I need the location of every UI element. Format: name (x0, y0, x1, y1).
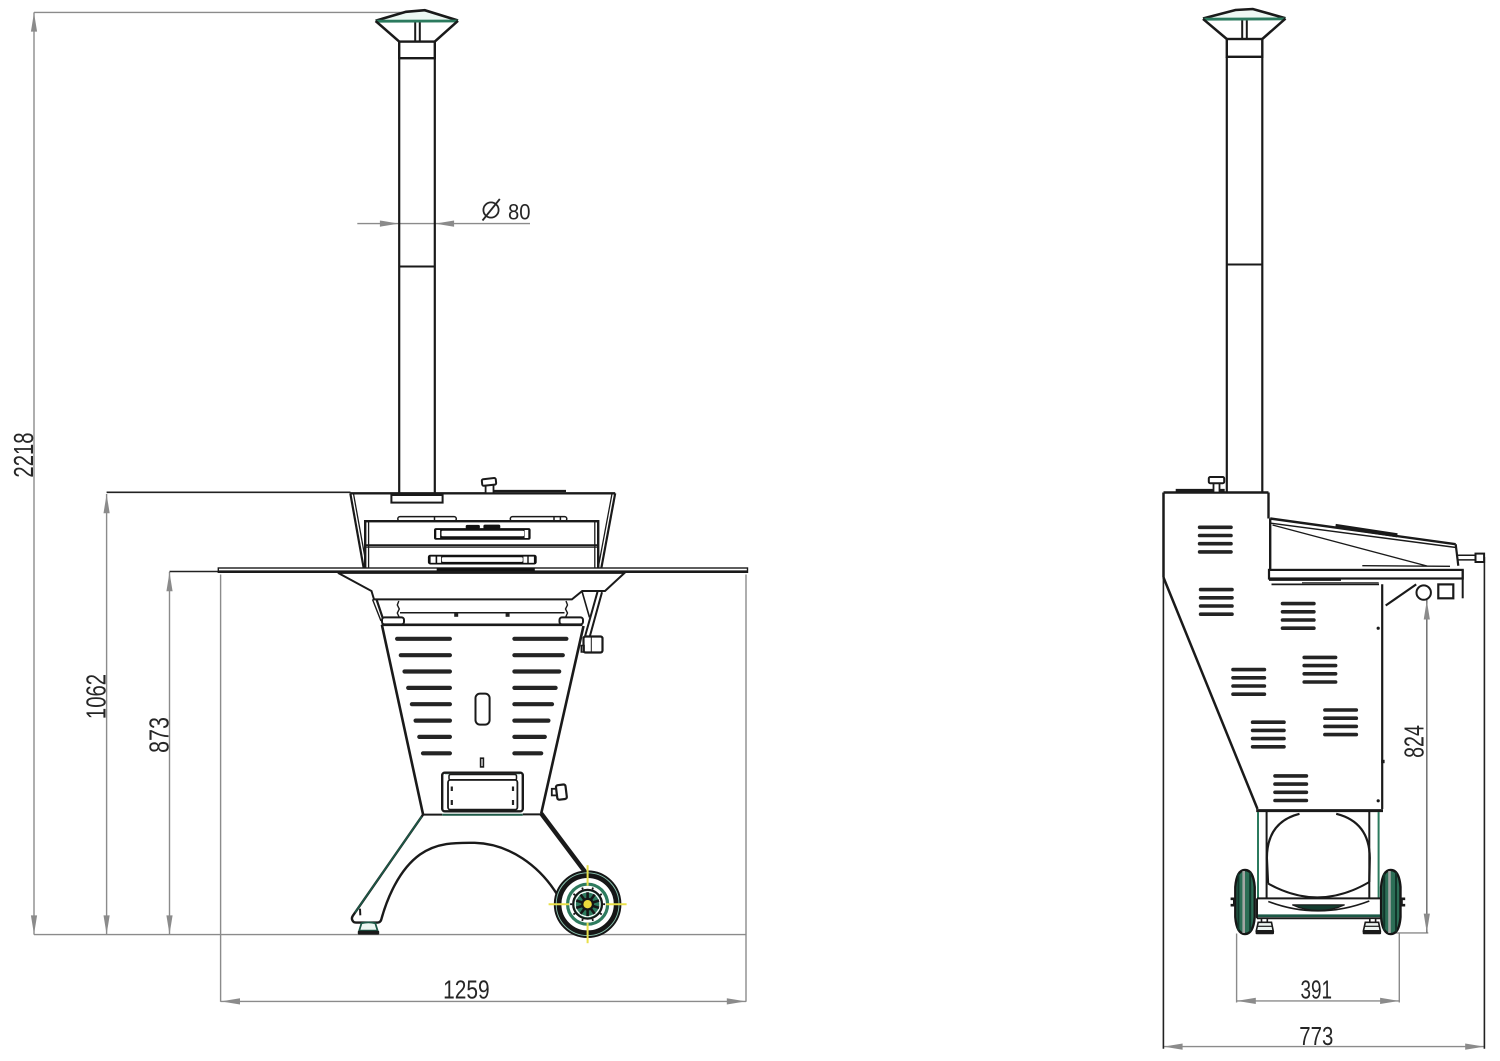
svg-text:1259: 1259 (443, 974, 490, 1004)
svg-text:391: 391 (1301, 975, 1333, 1005)
svg-text:873: 873 (144, 717, 175, 753)
svg-text:1062: 1062 (81, 674, 112, 719)
svg-text:80: 80 (508, 199, 531, 224)
svg-text:773: 773 (1299, 1021, 1333, 1051)
svg-text:824: 824 (1399, 725, 1430, 758)
svg-text:2218: 2218 (8, 432, 39, 477)
